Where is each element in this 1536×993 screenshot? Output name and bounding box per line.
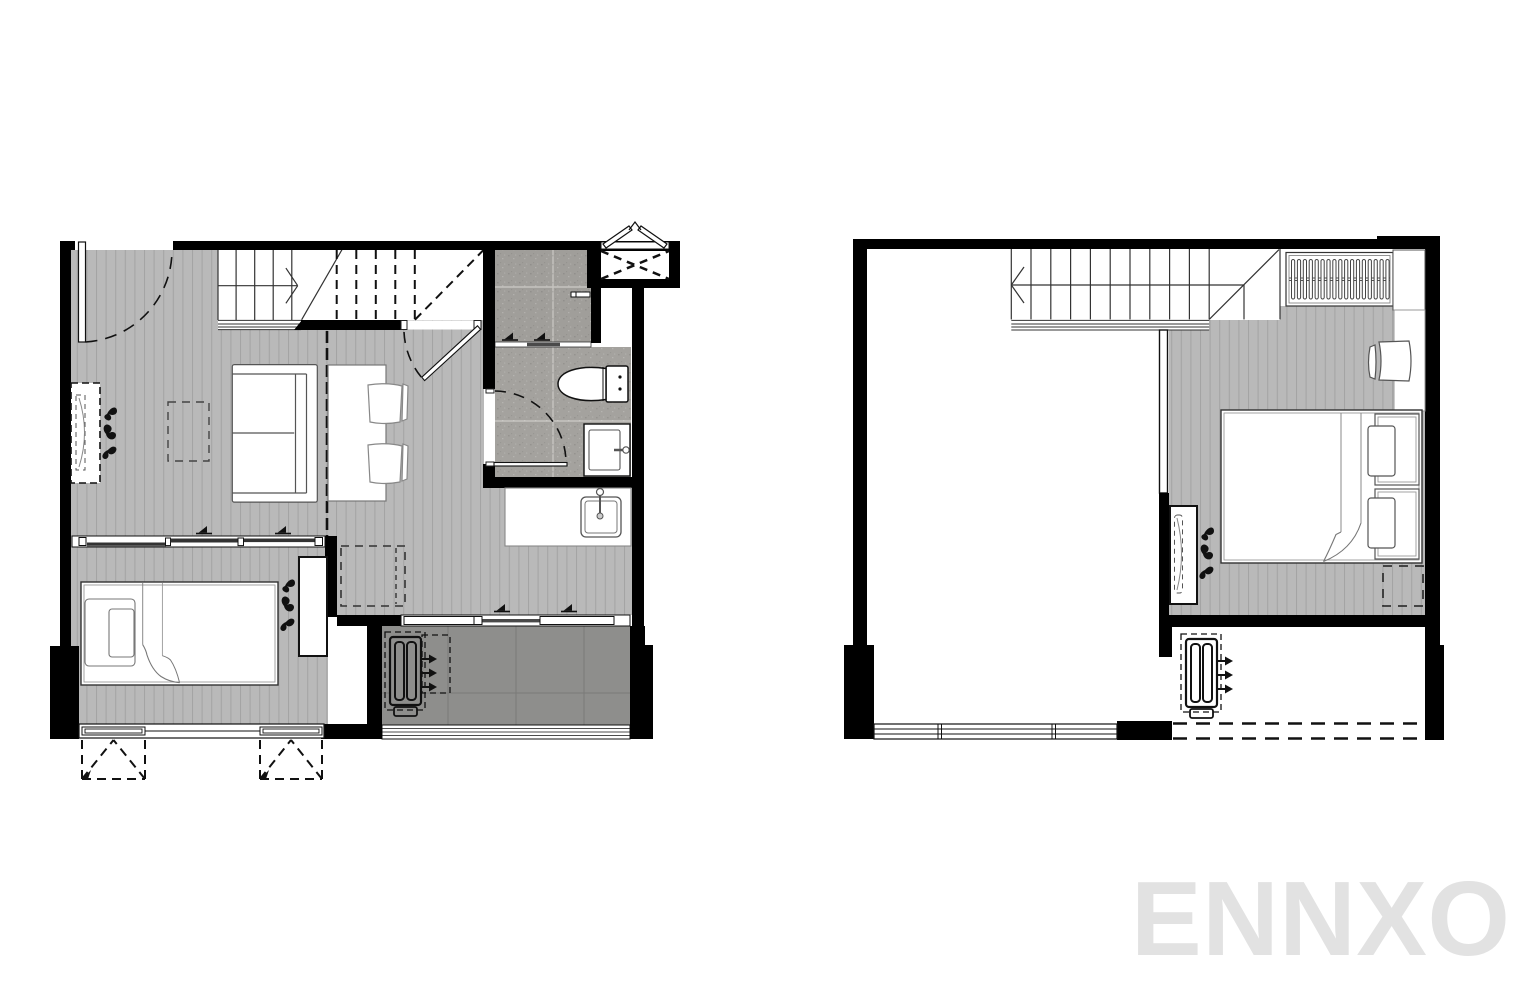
svg-text:ENNXO: ENNXO bbox=[1131, 860, 1510, 978]
